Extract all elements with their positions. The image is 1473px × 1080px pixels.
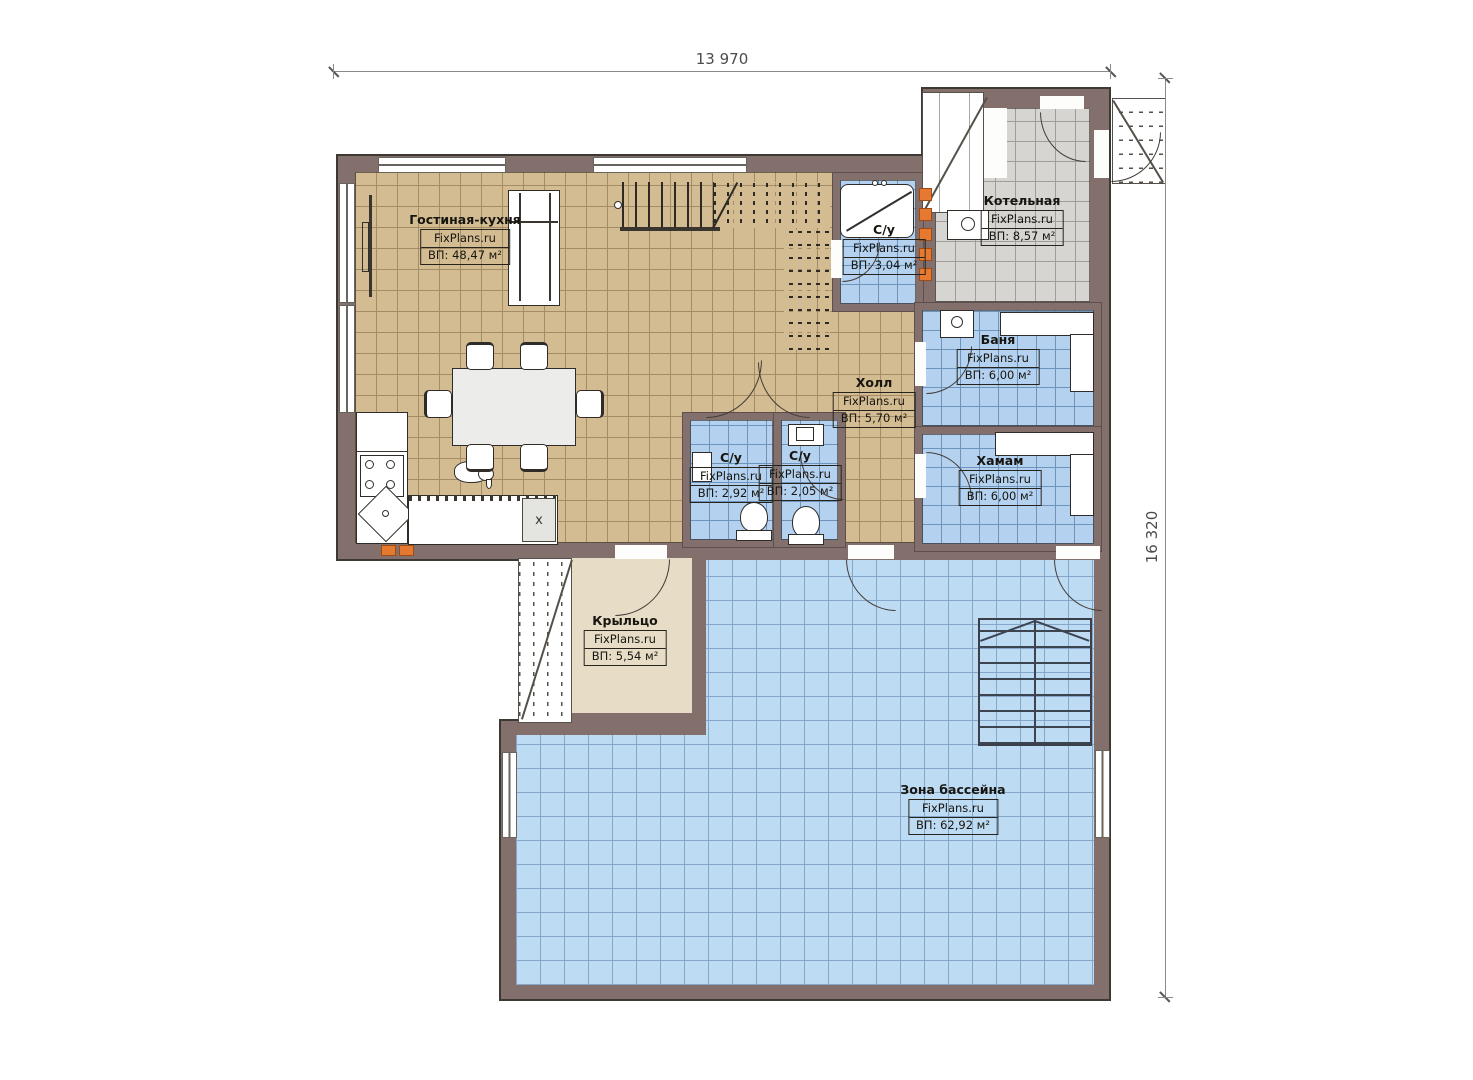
room-label-banya: Баня FixPlans.ru ВП: 6,00 м² [957, 332, 1040, 385]
door-opening-hamam [915, 454, 926, 498]
room-area: ВП: 2,05 м² [760, 484, 841, 501]
room-info-box: FixPlans.ru ВП: 2,05 м² [759, 465, 842, 501]
door-opening-porch [615, 545, 667, 559]
brand-watermark: FixPlans.ru [909, 800, 997, 818]
banya-bench [1070, 334, 1094, 392]
room-name: Баня [981, 332, 1016, 347]
dishwasher-mark: x [535, 513, 543, 528]
staircase-stringer [620, 227, 720, 231]
window-pool-left [502, 752, 517, 838]
room-label-boiler: Котельная FixPlans.ru ВП: 8,57 м² [981, 193, 1064, 246]
staircase-dashed-column [784, 230, 830, 350]
window-left-2 [339, 305, 355, 413]
pool-staircase-center-line [1034, 618, 1036, 746]
hamam-bench [1070, 454, 1094, 516]
room-name: Зона бассейна [900, 782, 1005, 797]
sauna-stove-dial [951, 316, 963, 328]
brand-watermark: FixPlans.ru [960, 471, 1041, 489]
room-label-hall: Холл FixPlans.ru ВП: 5,70 м² [833, 375, 916, 428]
room-info-box: FixPlans.ru ВП: 5,70 м² [833, 392, 916, 428]
dining-table [452, 368, 576, 446]
room-name: С/у [789, 448, 811, 463]
chair [520, 444, 548, 472]
room-name: С/у [720, 450, 742, 465]
room-name: Гостиная-кухня [409, 212, 521, 227]
brand-watermark: FixPlans.ru [585, 631, 666, 649]
left-wall-radiator-line [369, 195, 372, 297]
chair [520, 342, 548, 370]
wall-radiator [399, 545, 414, 556]
chair [466, 342, 494, 370]
room-info-box: FixPlans.ru ВП: 3,04 м² [843, 239, 926, 275]
stove-burner-3 [365, 480, 374, 489]
room-label-hamam: Хамам FixPlans.ru ВП: 6,00 м² [959, 453, 1042, 506]
stove-burner-1 [365, 460, 374, 469]
door-opening-boiler-top [1040, 96, 1084, 109]
dimension-line-top [333, 71, 1111, 72]
shower-faucet [872, 180, 878, 186]
room-info-box: FixPlans.ru ВП: 62,92 м² [908, 799, 998, 835]
floor-plan: x Гостиная-кухня [0, 0, 1473, 1080]
shower-faucet [881, 180, 887, 186]
room-area: ВП: 5,70 м² [834, 411, 915, 428]
room-area: ВП: 6,00 м² [958, 368, 1039, 385]
room-label-living-kitchen: Гостиная-кухня FixPlans.ru ВП: 48,47 м² [409, 212, 521, 265]
window-left-1 [339, 183, 355, 303]
brand-watermark: FixPlans.ru [982, 211, 1063, 229]
door-opening-boiler-right [1094, 130, 1109, 178]
towel-radiator [919, 208, 932, 221]
corner-sink-drain [382, 510, 389, 517]
dimension-height-label: 16 320 [1143, 511, 1161, 564]
door-opening-banya [915, 342, 926, 386]
room-name: Хамам [977, 453, 1024, 468]
brand-watermark: FixPlans.ru [421, 230, 509, 248]
room-label-pool-zone: Зона бассейна FixPlans.ru ВП: 62,92 м² [900, 782, 1005, 835]
dimension-ext [1158, 78, 1173, 79]
left-wall-radiator [362, 222, 369, 272]
room-name: Крыльцо [592, 613, 657, 628]
dimension-ext [333, 64, 334, 79]
wc-right-sink-bowl [796, 427, 814, 441]
room-area: ВП: 3,04 м² [844, 258, 925, 275]
window-top-2 [593, 157, 747, 173]
wall-radiator [381, 545, 396, 556]
room-info-box: FixPlans.ru ВП: 5,54 м² [584, 630, 667, 666]
boiler-unit-dial [961, 217, 975, 231]
dimension-ext [1158, 997, 1173, 998]
chair [466, 444, 494, 472]
dimension-line-right [1165, 78, 1166, 997]
brand-watermark: FixPlans.ru [834, 393, 915, 411]
room-info-box: FixPlans.ru ВП: 6,00 м² [959, 470, 1042, 506]
room-name: С/у [873, 222, 895, 237]
door-opening-wc-top [831, 240, 842, 278]
wc-right-toilet-tank [788, 534, 824, 545]
brand-watermark: FixPlans.ru [958, 350, 1039, 368]
room-area: ВП: 5,54 м² [585, 649, 666, 666]
room-label-wc-top: С/у FixPlans.ru ВП: 3,04 м² [843, 222, 926, 275]
dimension-ext [1110, 64, 1111, 79]
wc-left-toilet [740, 502, 768, 532]
room-info-box: FixPlans.ru ВП: 8,57 м² [981, 210, 1064, 246]
staircase-start-marker [614, 201, 622, 209]
chair [576, 390, 604, 418]
room-area: ВП: 8,57 м² [982, 229, 1063, 246]
room-name: Холл [856, 375, 893, 390]
door-opening-hall-pool [848, 545, 894, 559]
kitchen-counter-divider [357, 451, 407, 452]
staircase-solid-treads [622, 182, 714, 228]
chair [424, 390, 452, 418]
room-info-box: FixPlans.ru ВП: 6,00 м² [957, 349, 1040, 385]
window-top-1 [378, 157, 506, 173]
wc-left-toilet-tank [736, 530, 772, 541]
door-opening-hamam-pool [1056, 546, 1100, 559]
room-area: ВП: 48,47 м² [421, 248, 509, 265]
room-label-wc-right: С/у FixPlans.ru ВП: 2,05 м² [759, 448, 842, 501]
room-info-box: FixPlans.ru ВП: 48,47 м² [420, 229, 510, 265]
stove-burner-2 [386, 460, 395, 469]
room-name: Котельная [984, 193, 1061, 208]
dimension-width-label: 13 970 [696, 50, 749, 68]
room-label-porch: Крыльцо FixPlans.ru ВП: 5,54 м² [584, 613, 667, 666]
dishwasher-cabinet: x [522, 498, 556, 542]
towel-radiator [919, 188, 932, 201]
room-area: ВП: 6,00 м² [960, 489, 1041, 506]
room-area: ВП: 62,92 м² [909, 818, 997, 835]
brand-watermark: FixPlans.ru [760, 466, 841, 484]
brand-watermark: FixPlans.ru [844, 240, 925, 258]
window-pool-right [1095, 750, 1110, 838]
